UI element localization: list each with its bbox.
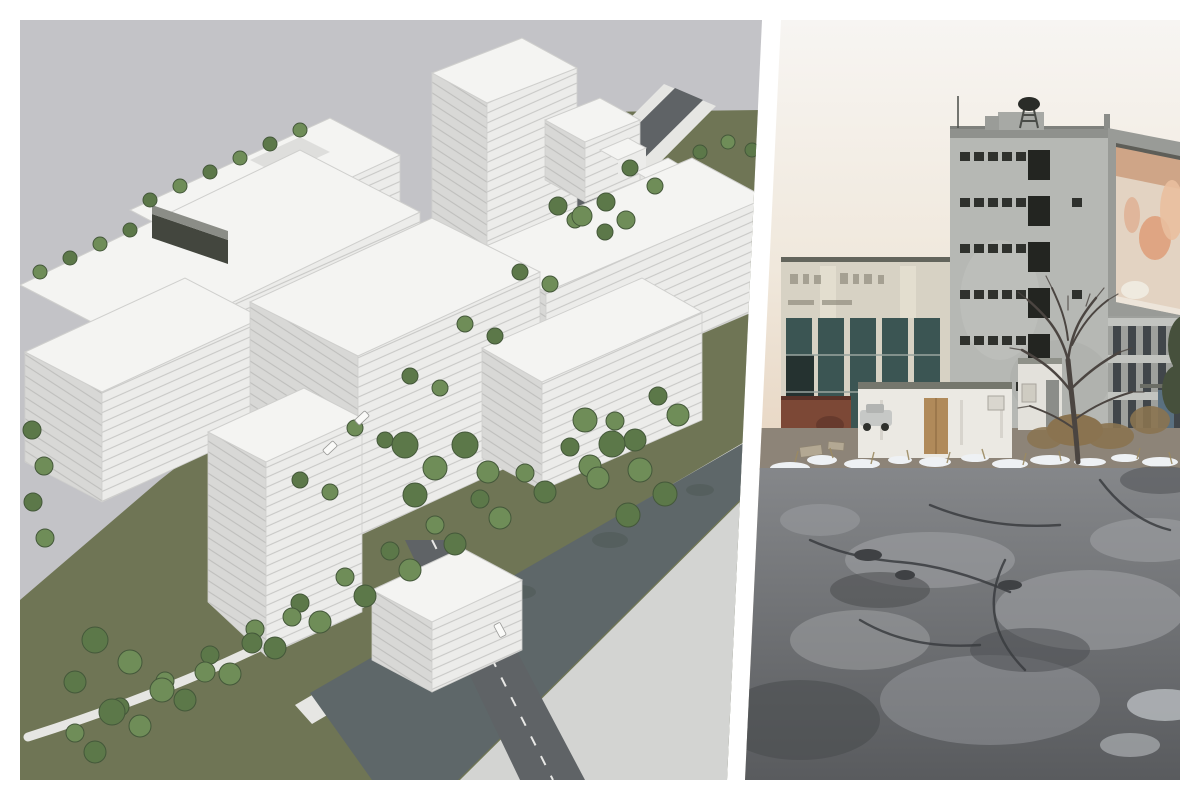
collage-canvas [0, 0, 1200, 800]
collage-svg [0, 0, 1200, 800]
asphalt-lot [720, 466, 1200, 780]
faded-billboard [1116, 143, 1185, 316]
kiosk-sign [1022, 384, 1036, 402]
ice-patch [1127, 689, 1200, 721]
shed-window [988, 396, 1004, 410]
site-photo-panel [720, 0, 1200, 800]
